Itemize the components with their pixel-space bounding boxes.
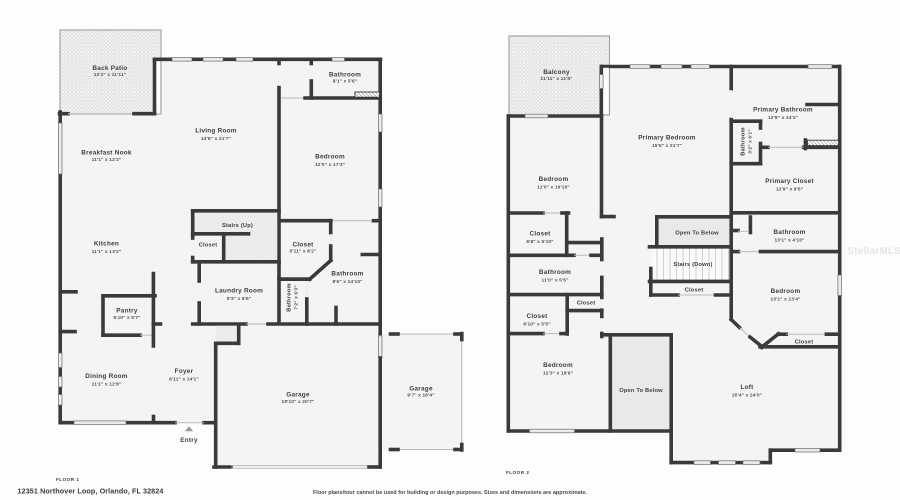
- svg-text:Primary Closet: Primary Closet: [765, 178, 814, 185]
- svg-text:Entry: Entry: [180, 437, 198, 444]
- svg-text:Closet: Closet: [795, 340, 814, 346]
- svg-text:Back Patio: Back Patio: [92, 65, 127, 72]
- svg-text:Closet: Closet: [529, 231, 551, 238]
- svg-text:20'4" x 24'0": 20'4" x 24'0": [732, 393, 762, 399]
- svg-text:Primary Bathroom: Primary Bathroom: [753, 107, 813, 114]
- svg-text:Garage: Garage: [409, 386, 433, 393]
- svg-text:Breakfast Nook: Breakfast Nook: [81, 150, 132, 157]
- svg-text:FLOOR 2: FLOOR 2: [506, 470, 529, 475]
- svg-text:Laundry Room: Laundry Room: [215, 288, 263, 295]
- svg-text:Kitchen: Kitchen: [94, 241, 119, 248]
- svg-text:12'9" x 14'2": 12'9" x 14'2": [768, 115, 798, 121]
- svg-text:11'0" x 19'10": 11'0" x 19'10": [537, 185, 570, 191]
- svg-text:Closet: Closet: [577, 301, 596, 307]
- svg-text:Floor plans/tour cannot be use: Floor plans/tour cannot be used for buil…: [313, 490, 588, 496]
- svg-text:14'8" x 21'7": 14'8" x 21'7": [201, 136, 231, 142]
- svg-text:11'1" x 12'8": 11'1" x 12'8": [92, 382, 122, 388]
- svg-text:Open To Below: Open To Below: [675, 231, 719, 237]
- svg-text:Closet: Closet: [199, 243, 218, 249]
- svg-text:13'1" x 13'4": 13'1" x 13'4": [770, 297, 800, 303]
- svg-text:Pantry: Pantry: [116, 308, 138, 315]
- svg-text:13'1" x 4'10": 13'1" x 4'10": [774, 238, 804, 244]
- svg-text:12'0" x 17'3": 12'0" x 17'3": [315, 162, 345, 168]
- svg-text:Bedroom: Bedroom: [315, 154, 345, 161]
- svg-text:Garage: Garage: [286, 392, 310, 399]
- svg-text:Bathroom: Bathroom: [539, 269, 571, 276]
- svg-text:5'10" x 5'7": 5'10" x 5'7": [113, 315, 140, 321]
- svg-text:5'11" x 8'2": 5'11" x 8'2": [289, 249, 316, 255]
- svg-text:Loft: Loft: [740, 384, 754, 391]
- svg-text:StellarMLS: StellarMLS: [848, 246, 900, 257]
- svg-text:Bedroom: Bedroom: [543, 362, 573, 369]
- svg-text:Stairs (Up): Stairs (Up): [222, 223, 253, 229]
- svg-text:19'10" x 20'7": 19'10" x 20'7": [282, 399, 315, 405]
- svg-text:15'5" x 21'7": 15'5" x 21'7": [652, 143, 682, 149]
- svg-text:6'8" x 5'10": 6'8" x 5'10": [526, 239, 553, 245]
- svg-text:Bathroom: Bathroom: [741, 127, 747, 155]
- svg-text:Primary Bedroom: Primary Bedroom: [638, 135, 695, 142]
- svg-text:Bathroom: Bathroom: [329, 72, 361, 79]
- svg-text:Dining Room: Dining Room: [85, 373, 128, 380]
- svg-text:12'3" x 19'6": 12'3" x 19'6": [543, 371, 573, 377]
- svg-text:12351 Northover Loop, Orlando,: 12351 Northover Loop, Orlando, FL 32824: [18, 487, 164, 496]
- svg-text:11'0" x 5'5": 11'0" x 5'5": [541, 278, 568, 284]
- svg-text:FLOOR 1: FLOOR 1: [56, 477, 79, 482]
- svg-text:Bedroom: Bedroom: [771, 288, 801, 295]
- svg-text:Bathroom: Bathroom: [287, 283, 293, 311]
- svg-text:Bathroom: Bathroom: [331, 271, 363, 278]
- svg-text:9'3" x 8'6": 9'3" x 8'6": [227, 296, 251, 302]
- svg-text:Bedroom: Bedroom: [539, 176, 569, 183]
- svg-text:Foyer: Foyer: [175, 368, 194, 375]
- svg-text:11'1" x 13'2": 11'1" x 13'2": [92, 249, 122, 255]
- svg-text:8'6" x 14'10": 8'6" x 14'10": [332, 279, 362, 285]
- svg-text:11'11" x 11'5": 11'11" x 11'5": [540, 76, 572, 82]
- svg-text:Closet: Closet: [526, 313, 548, 320]
- svg-text:Balcony: Balcony: [543, 69, 570, 76]
- svg-text:Open To Below: Open To Below: [619, 388, 663, 394]
- svg-text:Living Room: Living Room: [195, 128, 237, 135]
- svg-text:Bathroom: Bathroom: [773, 229, 805, 236]
- svg-text:Closet: Closet: [685, 288, 704, 294]
- svg-text:3'2" x 6'1": 3'2" x 6'1": [747, 129, 753, 153]
- svg-text:7'2" x 6'3": 7'2" x 6'3": [293, 285, 299, 309]
- svg-text:Closet: Closet: [292, 242, 314, 249]
- svg-text:Stairs (Down): Stairs (Down): [673, 262, 712, 268]
- svg-text:11'1" x 12'2": 11'1" x 12'2": [92, 157, 122, 163]
- svg-text:12'9" x 9'5": 12'9" x 9'5": [776, 187, 803, 193]
- svg-text:9'7" x 16'4": 9'7" x 16'4": [407, 393, 434, 399]
- svg-text:6'11" x 14'1": 6'11" x 14'1": [169, 377, 199, 383]
- svg-text:8'1" x 5'6": 8'1" x 5'6": [333, 79, 357, 85]
- svg-text:12'2" x 11'11": 12'2" x 11'11": [94, 72, 126, 78]
- svg-text:6'10" x 5'5": 6'10" x 5'5": [523, 322, 550, 328]
